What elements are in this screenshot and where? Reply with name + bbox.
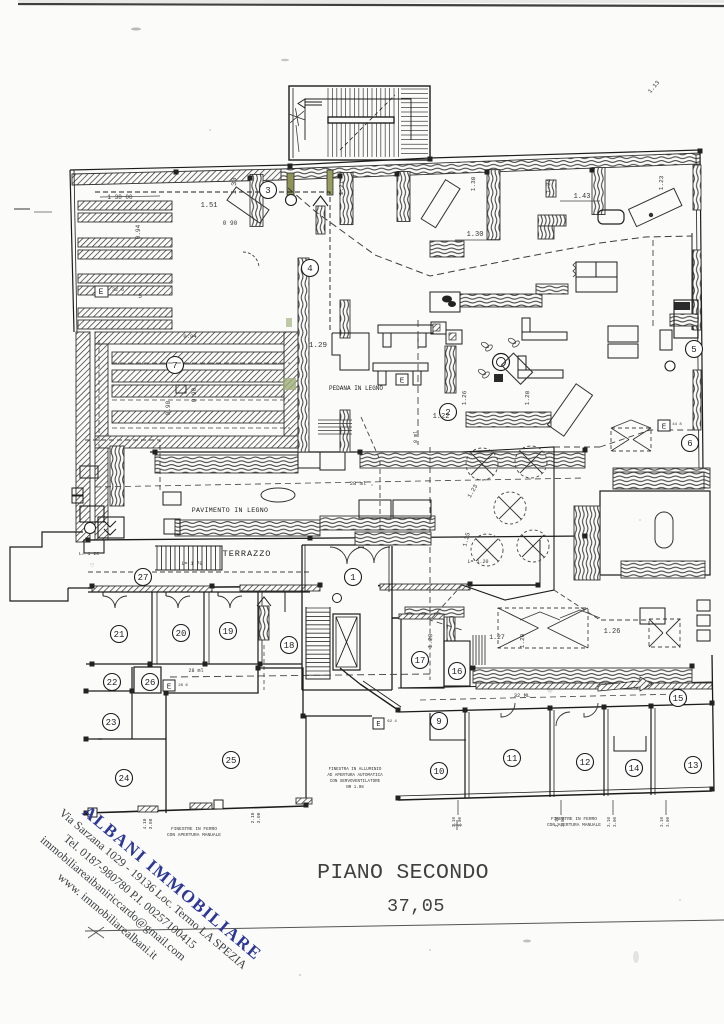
svg-text:3.10: 3.10: [661, 816, 665, 827]
svg-text:1.27: 1.27: [489, 634, 505, 641]
svg-text:E: E: [376, 721, 380, 729]
svg-text:3.00: 3.00: [459, 816, 463, 827]
svg-text:18: 18: [284, 641, 295, 651]
svg-text:E: E: [167, 684, 172, 692]
svg-text:1.51: 1.51: [201, 202, 218, 210]
svg-text:1.30: 1.30: [467, 231, 484, 239]
svg-text:5: 5: [138, 293, 142, 300]
svg-text:1.30: 1.30: [470, 176, 478, 191]
svg-text:1.29: 1.29: [309, 342, 327, 350]
svg-text:0.90: 0.90: [165, 400, 172, 415]
svg-text:CON APERTURA MANUALE: CON APERTURA MANUALE: [547, 822, 601, 828]
svg-text:1.30: 1.30: [231, 177, 240, 194]
svg-text:3.00: 3.00: [256, 812, 262, 823]
svg-text:AD APERTURA AUTOMATICA: AD APERTURA AUTOMATICA: [327, 774, 383, 778]
svg-text:25: 25: [226, 756, 237, 766]
svg-text:15: 15: [673, 694, 684, 704]
svg-text:E: E: [400, 378, 405, 386]
svg-text:37,05: 37,05: [387, 896, 445, 917]
svg-text:3.10: 3.10: [608, 816, 612, 827]
svg-text:12: 12: [580, 758, 591, 768]
svg-text:0.94: 0.94: [135, 224, 142, 239]
svg-text:CON APERTURA MANUALE: CON APERTURA MANUALE: [167, 832, 221, 838]
svg-text:8 ml: 8 ml: [413, 431, 419, 443]
svg-text:1.20: 1.20: [427, 633, 435, 648]
svg-text:PIANO SECONDO: PIANO SECONDO: [317, 861, 489, 885]
svg-text:1.22: 1.22: [433, 413, 450, 421]
svg-text:27: 27: [138, 573, 149, 583]
svg-text:44 8: 44 8: [672, 423, 682, 427]
svg-text:3.00: 3.00: [667, 816, 671, 827]
svg-text:11: 11: [507, 754, 518, 764]
svg-text:FINESTRE IN FERRO: FINESTRE IN FERRO: [551, 816, 597, 822]
svg-text:1.26: 1.26: [461, 390, 469, 405]
svg-text:0.90: 0.90: [191, 387, 198, 402]
svg-text:1.20: 1.20: [524, 390, 532, 405]
svg-text:1.24: 1.24: [545, 178, 553, 193]
svg-text:10: 10: [434, 767, 445, 777]
svg-text:24: 24: [119, 774, 130, 784]
svg-text:1.23: 1.23: [658, 175, 666, 190]
svg-text:28 ml: 28 ml: [350, 480, 367, 487]
svg-text:28 6: 28 6: [178, 684, 188, 688]
svg-text:3.08: 3.08: [148, 818, 154, 829]
svg-text:L= 1 70: L= 1 70: [181, 561, 202, 567]
svg-text:3.10: 3.10: [453, 816, 457, 827]
svg-text:NR 1.98: NR 1.98: [346, 786, 364, 790]
svg-text:3: 3: [265, 186, 270, 196]
svg-text:CON SERVOVENTILATORE: CON SERVOVENTILATORE: [330, 780, 381, 784]
svg-text:16: 16: [452, 667, 463, 677]
svg-text:0 90: 0 90: [223, 220, 238, 227]
svg-text:4: 4: [307, 264, 312, 274]
svg-text:3.00: 3.00: [614, 816, 618, 827]
svg-text:0.94: 0.94: [183, 333, 197, 340]
svg-text:28 ml: 28 ml: [188, 668, 203, 674]
svg-text:2.10: 2.10: [250, 812, 256, 823]
svg-text:E: E: [99, 288, 104, 297]
svg-text:23: 23: [106, 718, 117, 728]
svg-text:1.21: 1.21: [338, 180, 346, 195]
svg-text:22: 22: [107, 678, 118, 688]
svg-text:1: 1: [350, 573, 355, 583]
svg-text:9: 9: [436, 717, 441, 727]
svg-text:4.10: 4.10: [142, 818, 148, 829]
svg-text:PEDANA IN LEGNO: PEDANA IN LEGNO: [329, 385, 383, 392]
svg-text:13: 13: [688, 761, 699, 771]
svg-text:62 4: 62 4: [387, 720, 397, 724]
svg-text:20: 20: [176, 629, 187, 639]
svg-text:PAVIMENTO IN LEGNO: PAVIMENTO IN LEGNO: [192, 507, 269, 514]
svg-text:17: 17: [415, 656, 426, 666]
svg-text:1.26: 1.26: [604, 628, 621, 636]
svg-text:5: 5: [691, 345, 696, 355]
svg-text:FINESTRA IN ALLUMINIO: FINESTRA IN ALLUMINIO: [329, 768, 382, 772]
svg-text:TERRAZZO: TERRAZZO: [223, 549, 272, 559]
svg-text:32 ML: 32 ML: [514, 692, 531, 699]
svg-text:21: 21: [114, 630, 125, 640]
svg-text:14: 14: [629, 764, 640, 774]
svg-text:6: 6: [687, 439, 692, 449]
svg-text:L= 1.20: L= 1.20: [467, 559, 488, 565]
svg-text:26: 26: [145, 678, 156, 688]
svg-text:32 6: 32 6: [112, 287, 124, 293]
svg-text:FINESTRE IN FERRO: FINESTRE IN FERRO: [171, 826, 217, 832]
svg-text:L= 1 20: L= 1 20: [79, 551, 99, 557]
svg-text:1.43: 1.43: [574, 193, 591, 201]
svg-text:E: E: [662, 424, 667, 432]
svg-text:19: 19: [223, 627, 234, 637]
svg-text:1 38 00: 1 38 00: [107, 194, 133, 201]
